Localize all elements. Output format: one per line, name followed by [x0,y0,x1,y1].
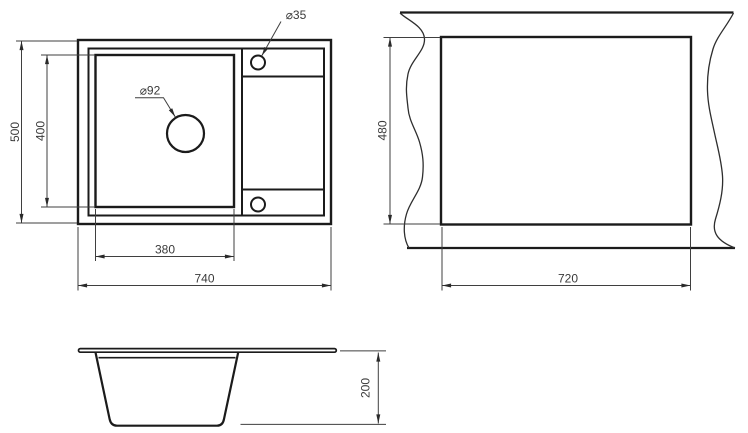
bowl-opening [96,55,235,207]
break-line-left [400,13,425,248]
tap-hole-top [251,56,265,70]
side-view: 200 [79,349,387,426]
drain-hole [167,115,204,152]
overall-width-label: 740 [194,272,214,286]
bowl-width-label: 380 [155,243,175,257]
plan-view: ⌀92 ⌀35 500 400 380 740 [8,8,331,291]
drain-diameter-label: ⌀92 [140,84,161,98]
rim-profile [79,349,337,353]
tap-hole-diameter-label: ⌀35 [286,8,307,22]
cutout-depth-label: 480 [376,120,390,140]
bowl-depth-label: 400 [34,121,48,141]
cutout-view: 480 720 [376,13,736,291]
drawing-sheet: ⌀92 ⌀35 500 400 380 740 [0,0,748,433]
bowl-height-label: 200 [359,378,373,398]
tap-hole-bottom [251,198,265,212]
cutout-width-label: 720 [558,272,578,286]
tap-hole-leader [262,22,281,56]
sink-technical-drawing: ⌀92 ⌀35 500 400 380 740 [0,0,748,433]
overall-depth-label: 500 [8,122,22,142]
cutout-rectangle [441,37,691,225]
bowl-profile [96,352,239,425]
break-line-right [707,13,735,248]
drain-diameter-leader [135,98,175,117]
